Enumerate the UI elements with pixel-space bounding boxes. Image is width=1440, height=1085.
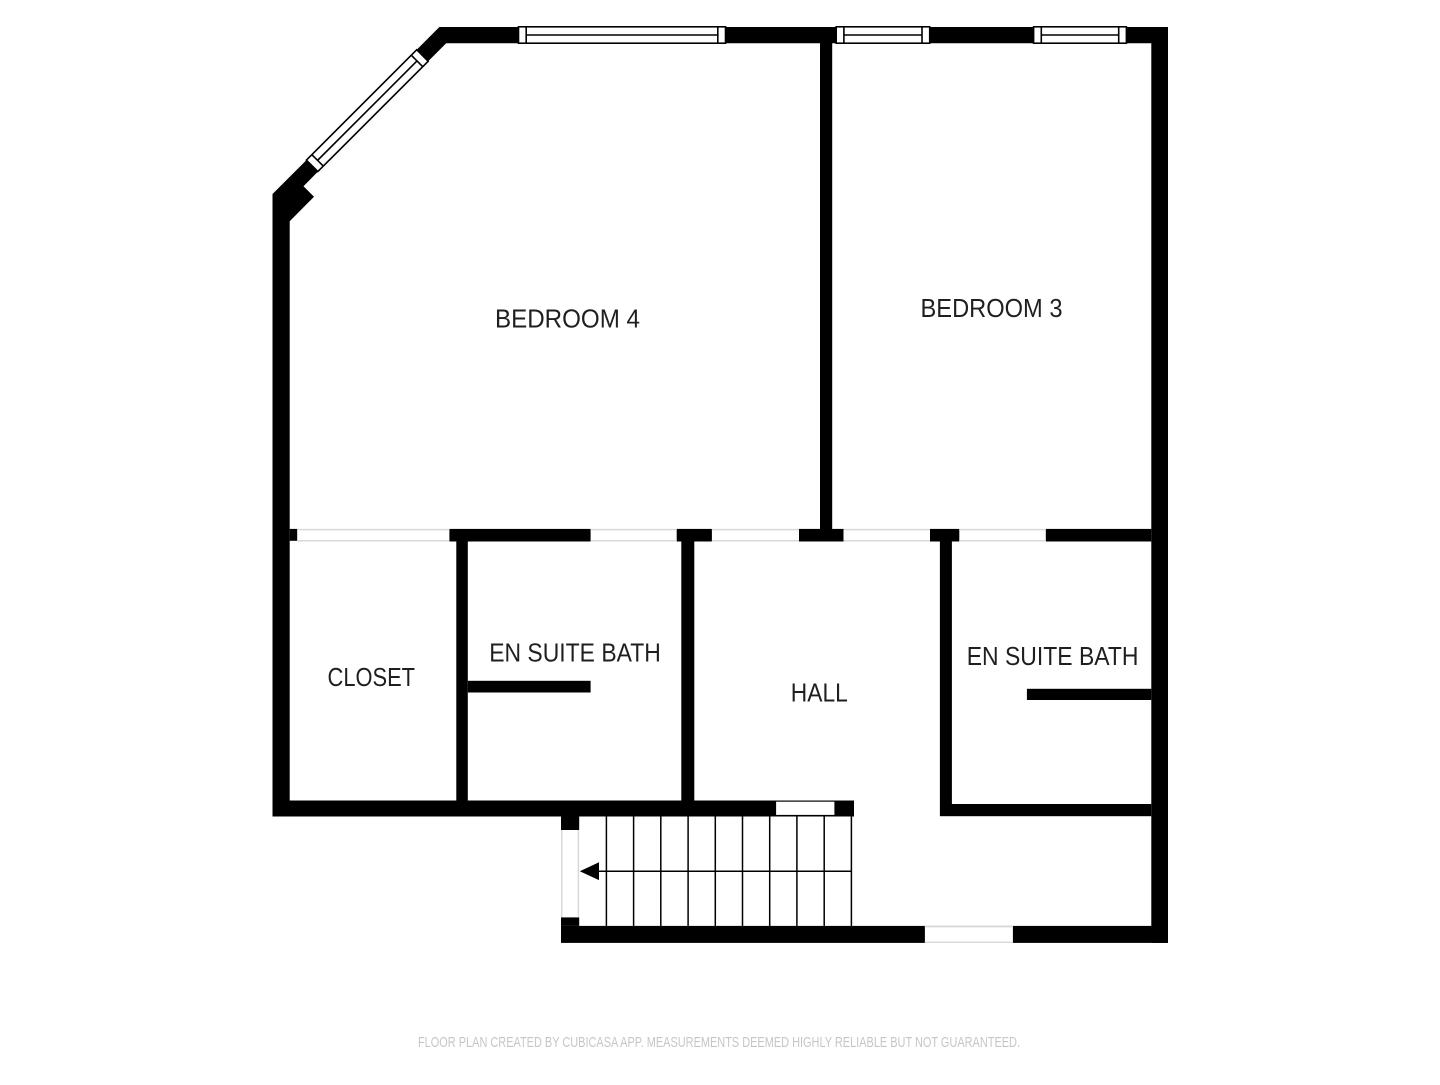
svg-text:EN SUITE BATH: EN SUITE BATH [489,638,661,668]
svg-text:BEDROOM 4: BEDROOM 4 [495,304,640,334]
svg-text:HALL: HALL [791,678,848,708]
svg-text:FLOOR PLAN CREATED BY CUBICASA: FLOOR PLAN CREATED BY CUBICASA APP. MEAS… [418,1034,1020,1051]
svg-text:CLOSET: CLOSET [328,662,416,692]
svg-text:BEDROOM 3: BEDROOM 3 [921,293,1063,323]
svg-text:EN SUITE BATH: EN SUITE BATH [967,641,1139,671]
